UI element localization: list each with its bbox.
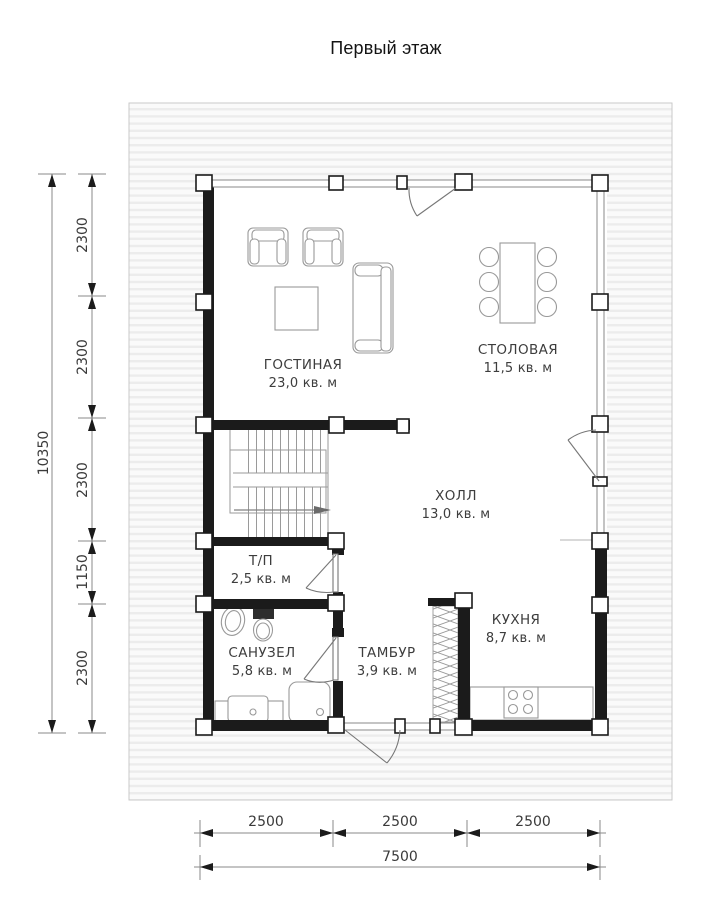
armchair	[303, 228, 343, 266]
dim-bottom-total: 7500	[360, 849, 440, 867]
room-label-kitchen: КУХНЯ8,7 кв. м	[441, 612, 591, 647]
dim-bottom-3: 2500	[493, 814, 573, 832]
dining-set	[480, 243, 557, 323]
dim-left-5: 2300	[75, 633, 93, 703]
toilet	[253, 609, 274, 641]
room-label-hall: ХОЛЛ13,0 кв. м	[381, 488, 531, 523]
chair	[538, 298, 557, 317]
dining-table	[500, 243, 535, 323]
room-label-living: ГОСТИНАЯ23,0 кв. м	[228, 357, 378, 392]
coffee-table	[275, 287, 318, 330]
chair	[538, 248, 557, 267]
stove	[504, 687, 538, 718]
dim-left-1: 2300	[75, 200, 93, 270]
bathroom-bottom-wall	[208, 720, 332, 731]
door-hinge-block	[332, 628, 344, 637]
dim-left-2: 2300	[75, 322, 93, 392]
armchair	[248, 228, 288, 266]
room-label-dining: СТОЛОВАЯ11,5 кв. м	[443, 342, 593, 377]
floor-plan-page: Первый этаж	[0, 0, 717, 898]
dim-left-3: 2300	[75, 445, 93, 515]
floor-plan-drawing	[0, 0, 717, 898]
tp-top-wall	[208, 537, 332, 546]
shower	[289, 682, 330, 723]
living-hall-wall	[208, 420, 410, 430]
dim-left-total: 10350	[36, 418, 54, 488]
kitchen-bottom-wall	[460, 720, 607, 731]
bathroom-top-wall	[208, 599, 332, 609]
room-label-tp: Т/П2,5 кв. м	[186, 553, 336, 588]
chair	[480, 298, 499, 317]
chair	[538, 273, 557, 292]
right-lower-wall	[595, 535, 607, 731]
chair	[480, 273, 499, 292]
sofa	[353, 263, 393, 353]
dim-left-4: 1150	[75, 537, 93, 607]
dim-bottom-1: 2500	[226, 814, 306, 832]
chair	[480, 248, 499, 267]
kitchen-counter	[470, 687, 593, 720]
room-label-tambour: ТАМБУР3,9 кв. м	[312, 645, 462, 680]
dim-bottom-2: 2500	[360, 814, 440, 832]
